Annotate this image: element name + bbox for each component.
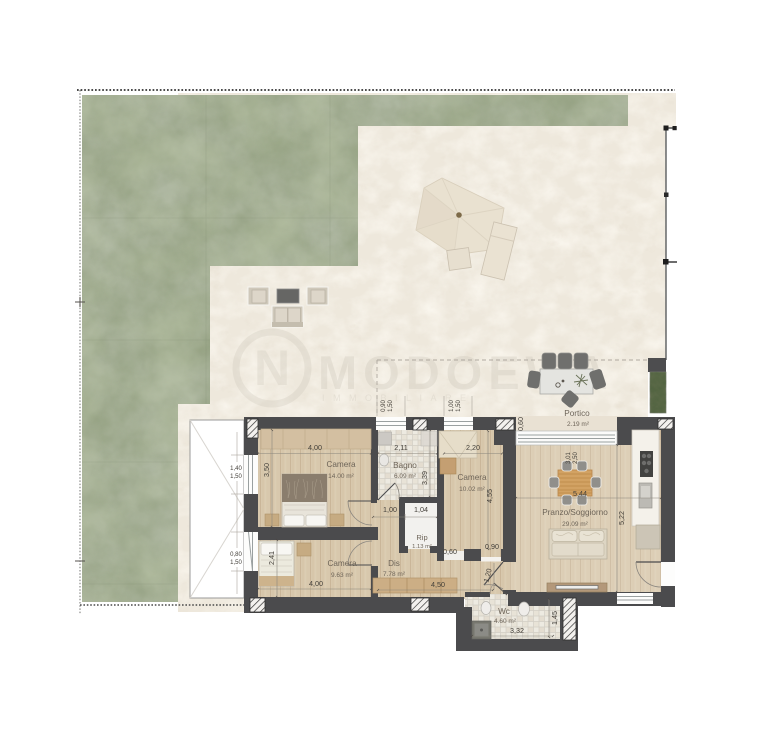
svg-text:4,50: 4,50 — [431, 580, 445, 589]
svg-text:5,44: 5,44 — [573, 489, 587, 498]
svg-text:Wc: Wc — [498, 607, 510, 616]
svg-text:2,41: 2,41 — [267, 551, 276, 565]
svg-text:4,55: 4,55 — [485, 489, 494, 503]
svg-text:Portico: Portico — [564, 409, 590, 418]
svg-text:0,60: 0,60 — [516, 417, 525, 431]
svg-text:4,00: 4,00 — [309, 579, 323, 588]
svg-text:Camera: Camera — [327, 559, 357, 568]
svg-text:2,50: 2,50 — [573, 452, 579, 464]
svg-text:N: N — [254, 340, 290, 396]
svg-text:4.60 m²: 4.60 m² — [494, 618, 517, 625]
svg-text:Camera: Camera — [457, 473, 487, 482]
svg-text:3,32: 3,32 — [510, 626, 524, 635]
svg-text:Dis: Dis — [388, 559, 400, 568]
svg-text:1,00: 1,00 — [449, 400, 455, 412]
svg-text:3,50: 3,50 — [262, 463, 271, 477]
svg-text:1,45: 1,45 — [550, 611, 559, 625]
svg-text:1,04: 1,04 — [414, 505, 428, 514]
svg-text:14.00 m²: 14.00 m² — [328, 473, 354, 480]
svg-text:4,00: 4,00 — [308, 443, 322, 452]
svg-text:7.78 m²: 7.78 m² — [383, 571, 406, 578]
svg-text:1,50: 1,50 — [388, 400, 394, 412]
svg-text:2,11: 2,11 — [394, 443, 407, 452]
svg-text:Pranzo/Soggiorno: Pranzo/Soggiorno — [542, 508, 608, 517]
svg-text:1,50: 1,50 — [230, 560, 242, 566]
svg-text:10.02 m²: 10.02 m² — [459, 486, 485, 493]
svg-text:1,00: 1,00 — [383, 505, 397, 514]
svg-text:6.09 m²: 6.09 m² — [394, 473, 417, 480]
svg-text:0,90: 0,90 — [381, 400, 387, 412]
svg-text:2,20: 2,20 — [466, 443, 480, 452]
svg-text:1,50: 1,50 — [230, 474, 242, 480]
svg-text:0,90: 0,90 — [485, 542, 499, 551]
svg-text:9.63 m²: 9.63 m² — [331, 572, 354, 579]
svg-text:1.13 m²: 1.13 m² — [412, 544, 432, 550]
svg-text:3,39: 3,39 — [420, 471, 429, 485]
svg-text:2.19 m²: 2.19 m² — [567, 421, 590, 428]
svg-text:29.09 m²: 29.09 m² — [562, 521, 588, 528]
svg-text:Bagno: Bagno — [393, 461, 417, 470]
svg-text:3,01: 3,01 — [566, 452, 572, 464]
svg-text:5,22: 5,22 — [617, 511, 626, 525]
svg-text:0,80: 0,80 — [230, 552, 242, 558]
svg-text:Rip: Rip — [416, 533, 427, 542]
svg-text:Camera: Camera — [326, 460, 356, 469]
svg-text:0,60: 0,60 — [443, 547, 457, 556]
svg-text:1,40: 1,40 — [230, 466, 242, 472]
svg-text:1,50: 1,50 — [456, 400, 462, 412]
